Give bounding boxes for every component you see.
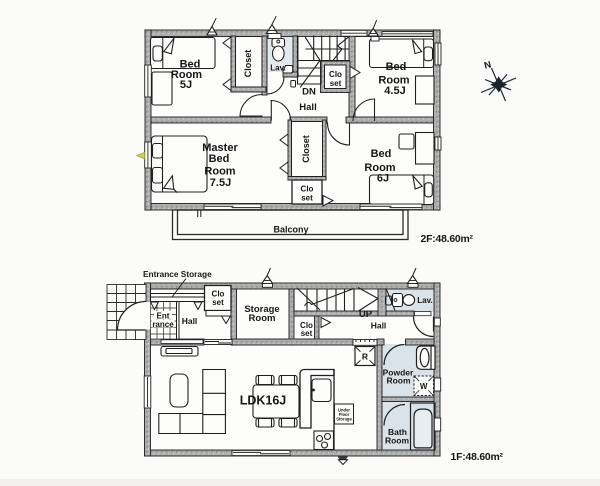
svg-text:LDK16J: LDK16J [240, 394, 287, 408]
svg-text:UP: UP [359, 309, 373, 320]
svg-text:Clo: Clo [329, 70, 342, 79]
svg-text:Clo: Clo [301, 185, 314, 194]
svg-text:Room: Room [385, 436, 410, 446]
svg-text:7.5J: 7.5J [210, 177, 231, 189]
svg-text:Closet: Closet [301, 135, 311, 163]
svg-text:Bed: Bed [371, 148, 392, 160]
svg-text:Room: Room [386, 376, 411, 386]
svg-text:Room: Room [249, 313, 276, 324]
svg-text:Bed: Bed [386, 61, 407, 73]
svg-text:set: set [301, 329, 313, 338]
svg-text:Room: Room [204, 166, 235, 178]
svg-text:Hall: Hall [182, 316, 198, 326]
svg-text:set: set [330, 79, 342, 88]
svg-text:Bed: Bed [209, 153, 230, 165]
svg-text:6J: 6J [377, 173, 389, 185]
svg-text:set: set [212, 298, 224, 307]
svg-text:DN: DN [302, 87, 316, 98]
svg-text:Hall: Hall [371, 321, 387, 331]
svg-text:Storage: Storage [336, 417, 352, 422]
svg-text:5J: 5J [180, 79, 192, 91]
svg-text:Lav.: Lav. [270, 64, 285, 73]
svg-text:Balcony: Balcony [273, 225, 308, 235]
svg-text:2F:48.60m²: 2F:48.60m² [421, 234, 474, 245]
svg-text:W: W [420, 382, 428, 391]
svg-text:4.5J: 4.5J [384, 85, 405, 97]
svg-text:Hall: Hall [299, 102, 316, 113]
svg-text:Entrance Storage: Entrance Storage [143, 269, 212, 279]
svg-text:set: set [301, 194, 313, 203]
svg-text:Lav.: Lav. [417, 296, 432, 305]
svg-text:1F:48.60m²: 1F:48.60m² [451, 452, 504, 463]
svg-text:R: R [362, 352, 368, 362]
svg-text:rance: rance [152, 320, 174, 329]
svg-text:Closet: Closet [243, 50, 253, 78]
